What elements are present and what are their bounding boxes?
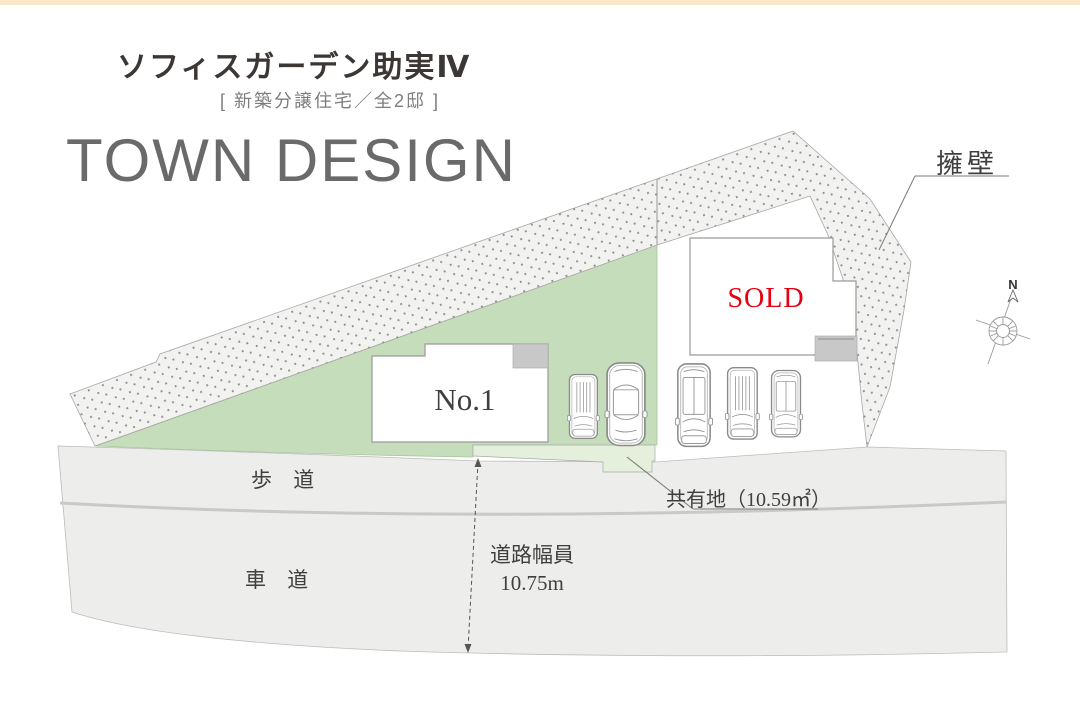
shared-area-label: 共有地（10.59㎡） [666, 483, 831, 512]
building-sold-porch [815, 336, 857, 361]
wall-label-leader [879, 176, 1009, 250]
car-minivan [675, 364, 712, 446]
sidewalk-label: 歩 道 [251, 464, 322, 494]
car-van-2 [725, 368, 759, 439]
building-no1-label: No.1 [395, 382, 535, 418]
roadway-label: 車 道 [245, 564, 316, 594]
road-width-label-line1: 道路幅員 [462, 541, 602, 569]
car-compact [769, 371, 802, 437]
road-width-label: 道路幅員 10.75m [462, 541, 602, 598]
car-van-1 [567, 375, 599, 439]
site-plan-drawing: N [0, 0, 1080, 720]
sold-badge: SOLD [696, 283, 836, 315]
road-width-label-line2: 10.75m [462, 569, 602, 597]
page: ソフィスガーデン助実Ⅳ [ 新築分譲住宅／全2邸 ] TOWN DESIGN [0, 0, 1080, 720]
compass-north-label: N [1008, 277, 1017, 292]
compass: N [976, 277, 1030, 364]
retaining-wall-label: 擁壁 [936, 142, 998, 181]
car-sedan [605, 363, 647, 446]
